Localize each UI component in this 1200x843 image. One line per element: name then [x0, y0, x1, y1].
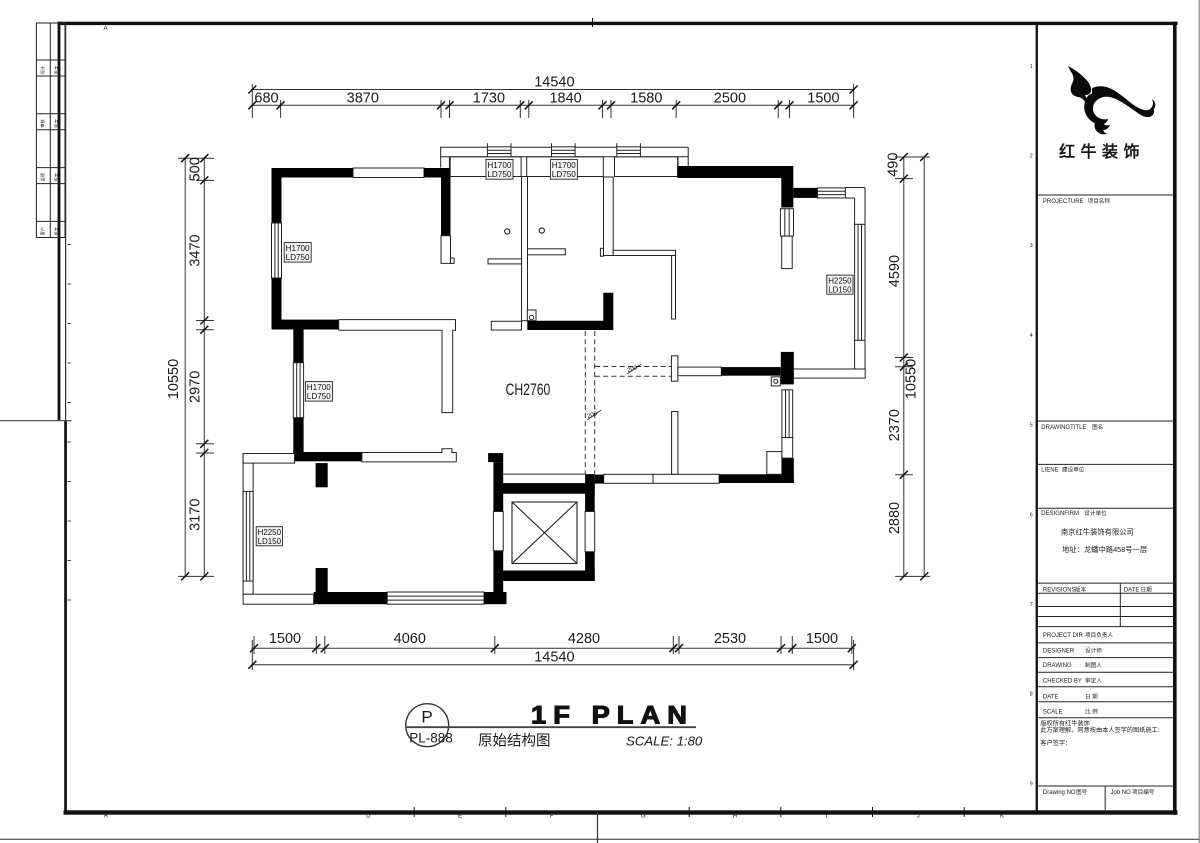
svg-text:日 期: 日 期 — [1085, 694, 1098, 701]
svg-text:LD750: LD750 — [487, 170, 512, 179]
svg-text:2530: 2530 — [714, 631, 746, 647]
svg-text:签字: 签字 — [53, 66, 59, 74]
svg-text:500: 500 — [188, 157, 204, 181]
svg-text:项目名称: 项目名称 — [1088, 197, 1111, 205]
svg-text:1: 1 — [1030, 64, 1033, 70]
svg-text:DESIGNER: DESIGNER — [1043, 648, 1075, 654]
svg-text:4060: 4060 — [394, 631, 426, 647]
svg-text:7: 7 — [1030, 602, 1033, 608]
svg-text:客户签字：: 客户签字： — [1040, 739, 1071, 747]
svg-text:DESIGNFIRM: DESIGNFIRM — [1041, 511, 1079, 517]
svg-text:H2250: H2250 — [828, 276, 852, 285]
svg-text:红牛装饰: 红牛装饰 — [1059, 142, 1145, 161]
svg-text:项目编号: 项目编号 — [1132, 788, 1155, 796]
svg-text:设计单位: 设计单位 — [1084, 509, 1107, 517]
svg-text:K: K — [1000, 814, 1004, 820]
svg-text:10550: 10550 — [904, 359, 920, 399]
svg-text:3: 3 — [1030, 243, 1033, 249]
svg-text:签字: 签字 — [53, 119, 59, 127]
svg-text:H1700: H1700 — [487, 161, 512, 170]
svg-text:SCALE: SCALE — [1043, 709, 1063, 715]
svg-text:比 例: 比 例 — [1085, 707, 1098, 715]
svg-text:H1700: H1700 — [307, 383, 332, 392]
svg-text:3470: 3470 — [188, 234, 204, 266]
svg-text:DATE: DATE — [1043, 695, 1059, 701]
svg-text:SCALE: 1:80: SCALE: 1:80 — [626, 734, 703, 749]
svg-text:2: 2 — [1030, 154, 1033, 160]
svg-text:项目负责人: 项目负责人 — [1085, 631, 1113, 639]
svg-text:原始结构图: 原始结构图 — [478, 733, 551, 750]
svg-text:CHECKED BY: CHECKED BY — [1043, 679, 1082, 685]
svg-text:1840: 1840 — [549, 90, 581, 106]
svg-text:Job NO: Job NO — [1111, 790, 1132, 796]
svg-text:DRAWING: DRAWING — [1043, 663, 1072, 669]
svg-text:P: P — [421, 708, 432, 727]
svg-text:680: 680 — [254, 90, 278, 106]
svg-text:2970: 2970 — [188, 371, 204, 403]
svg-text:1500: 1500 — [269, 631, 301, 647]
svg-text:LD750: LD750 — [552, 170, 577, 179]
svg-text:南京红牛装饰有限公司: 南京红牛装饰有限公司 — [1061, 528, 1134, 537]
svg-text:A: A — [103, 26, 107, 32]
svg-text:1500: 1500 — [806, 631, 838, 647]
svg-text:图号: 图号 — [1076, 788, 1088, 796]
svg-text:设计: 设计 — [39, 66, 46, 74]
svg-text:J: J — [917, 814, 920, 820]
svg-text:DRAWINGTITLE: DRAWINGTITLE — [1041, 425, 1086, 431]
svg-text:LD750: LD750 — [286, 253, 311, 262]
svg-text:审核: 审核 — [39, 119, 46, 128]
svg-text:1500: 1500 — [807, 90, 839, 106]
svg-text:签字: 签字 — [53, 227, 59, 235]
svg-text:G: G — [641, 814, 646, 820]
svg-text:设计师: 设计师 — [1085, 646, 1102, 654]
svg-text:此方案理解，同意按由本人签字的图纸施工:: 此方案理解，同意按由本人签字的图纸施工: — [1040, 726, 1160, 734]
svg-text:E: E — [458, 814, 462, 820]
svg-text:F: F — [550, 814, 554, 820]
svg-text:1730: 1730 — [473, 90, 505, 106]
svg-text:A: A — [104, 814, 108, 820]
svg-text:3870: 3870 — [347, 90, 379, 106]
svg-text:H2250: H2250 — [258, 528, 282, 537]
svg-text:5: 5 — [1030, 423, 1033, 429]
svg-text:H1700: H1700 — [552, 161, 577, 170]
svg-text:4280: 4280 — [568, 631, 600, 647]
svg-text:PROJECTURE: PROJECTURE — [1043, 199, 1084, 205]
svg-text:2880: 2880 — [887, 502, 903, 534]
svg-text:2370: 2370 — [887, 409, 903, 441]
svg-text:客户: 客户 — [39, 227, 46, 235]
svg-text:490: 490 — [886, 153, 902, 177]
svg-text:监理: 监理 — [39, 172, 45, 181]
svg-text:4590: 4590 — [887, 255, 903, 287]
svg-text:9: 9 — [1030, 781, 1033, 787]
svg-text:H: H — [733, 814, 737, 820]
svg-text:制图人: 制图人 — [1085, 661, 1102, 669]
svg-text:图名: 图名 — [1092, 423, 1103, 431]
svg-text:14540: 14540 — [534, 650, 574, 666]
svg-text:LD150: LD150 — [258, 537, 282, 546]
svg-text:1F PLAN: 1F PLAN — [531, 702, 694, 730]
svg-text:6: 6 — [1030, 512, 1033, 518]
svg-text:DATE: DATE — [1124, 587, 1140, 593]
svg-text:D: D — [366, 814, 371, 820]
svg-text:14540: 14540 — [534, 75, 574, 91]
svg-text:签字: 签字 — [53, 173, 59, 181]
svg-text:地址：龙蟠中路458号一层: 地址：龙蟠中路458号一层 — [1062, 545, 1147, 554]
svg-text:8: 8 — [1030, 692, 1033, 698]
svg-text:10550: 10550 — [166, 359, 182, 399]
svg-text:Drawing NO: Drawing NO — [1043, 790, 1076, 796]
svg-text:CH2760: CH2760 — [506, 381, 551, 399]
svg-text:PROJECT DIR: PROJECT DIR — [1043, 633, 1084, 639]
svg-text:1580: 1580 — [630, 90, 662, 106]
svg-text:PL-888: PL-888 — [409, 731, 453, 746]
svg-text:REVISIONS: REVISIONS — [1043, 587, 1076, 593]
svg-text:LD150: LD150 — [828, 285, 852, 294]
svg-text:H1700: H1700 — [286, 244, 311, 253]
svg-text:审定人: 审定人 — [1085, 677, 1102, 685]
svg-text:建设单位: 建设单位 — [1062, 466, 1085, 474]
svg-text:4: 4 — [1030, 333, 1033, 339]
svg-text:版本: 版本 — [1075, 585, 1087, 593]
svg-text:LIENE: LIENE — [1041, 468, 1058, 474]
svg-text:2500: 2500 — [714, 90, 746, 106]
svg-text:3170: 3170 — [188, 499, 204, 531]
svg-text:LD750: LD750 — [307, 392, 332, 401]
svg-text:日期: 日期 — [1141, 586, 1153, 593]
